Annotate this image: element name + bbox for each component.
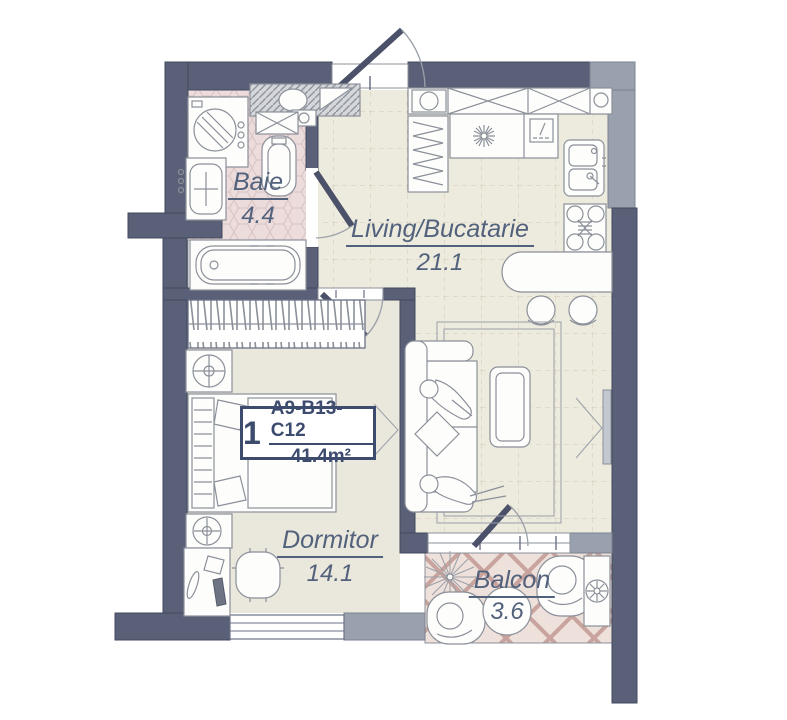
desk	[184, 548, 230, 616]
wall-balcony-light	[570, 533, 612, 553]
room-name: Dormitor	[277, 528, 383, 558]
room-label-dormitor: Dormitor 14.1	[277, 528, 383, 586]
wall-bath-living-lower	[306, 247, 318, 288]
room-label-living: Living/Bucatarie 21.1	[346, 217, 534, 275]
pillow	[214, 476, 246, 506]
wardrobe	[188, 300, 365, 348]
room-area: 14.1	[277, 562, 383, 586]
stove	[564, 204, 606, 252]
coffee-table	[490, 367, 530, 447]
nightstand-lamp-bottom	[186, 514, 232, 548]
room-area-balcon: 3.6	[490, 598, 523, 626]
unit-code: A9-B13-C12	[269, 398, 373, 445]
unit-area: 41.4m²	[291, 446, 351, 468]
bathtub	[190, 240, 306, 290]
armchair-left	[427, 592, 485, 644]
room-area: 4.4	[228, 204, 288, 228]
hood-fan-icon	[473, 125, 495, 147]
room-label-baie: Baie 4.4	[228, 170, 288, 228]
wall-balcony-stub	[400, 533, 428, 553]
room-name: Living/Bucatarie	[346, 217, 534, 247]
washing-machine	[188, 97, 248, 167]
fridge	[408, 116, 448, 192]
wall-left-upper	[165, 62, 188, 213]
room-name: Balcon	[469, 568, 555, 598]
floor-plan-drawing	[0, 0, 787, 720]
wall-right	[612, 208, 637, 703]
room-label-balcon: Balcon	[469, 568, 555, 598]
hood-counter	[450, 114, 558, 158]
ac-unit	[584, 556, 610, 626]
floor-plan-canvas: Baie 4.4 Living/Bucatarie 21.1 Dormitor …	[0, 0, 787, 720]
kitchen-sink	[564, 140, 606, 196]
unit-number: 1	[243, 417, 261, 449]
wall-sink	[179, 158, 227, 220]
bedroom-window	[230, 615, 344, 639]
nightstand-lamp-top	[186, 350, 232, 392]
wall-bottom-light	[344, 613, 425, 640]
wall-bedroom-top-right	[383, 288, 415, 300]
room-name: Baie	[228, 170, 288, 200]
upper-cabinets	[408, 88, 612, 114]
wall-bottom-dark	[115, 613, 230, 640]
unit-label-box: 1 A9-B13-C12 41.4m²	[240, 406, 376, 460]
wall-corner-light-top	[590, 62, 635, 90]
room-area: 21.1	[346, 251, 534, 275]
wall-top-right	[408, 62, 590, 90]
